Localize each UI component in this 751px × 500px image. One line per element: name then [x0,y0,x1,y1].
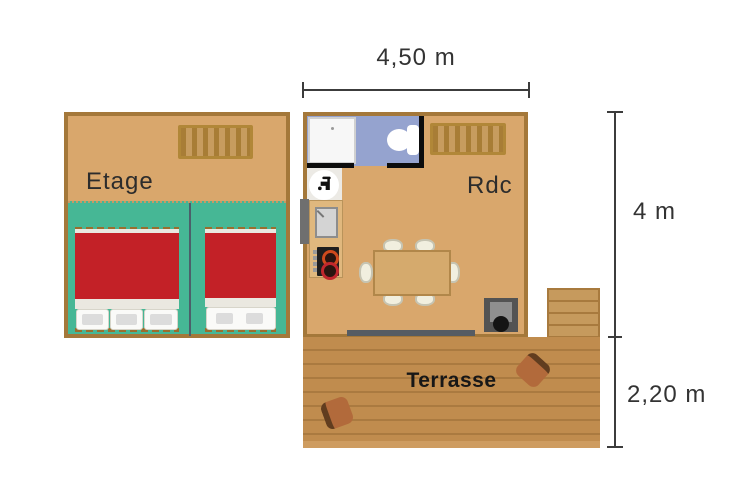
dining-table [373,250,451,296]
height-dimension-tick-middle [608,336,622,338]
etage-plan: Etage [64,112,290,338]
wood-stove-door [493,316,509,332]
height-lower-label: 2,20 m [627,381,706,409]
outdoor-steps [547,288,600,338]
height-dimension-tick-bottom [607,446,623,448]
burner [321,262,339,280]
rdc-label: Rdc [467,172,513,200]
width-dimension-label: 4,50 m [302,44,530,72]
bed-duvet-red [75,233,179,299]
pillow [246,313,263,324]
width-dimension-tick-left [302,82,304,98]
side-door [300,199,309,244]
terrasse-label: Terrasse [303,369,600,393]
etage-bedrooms [68,201,286,334]
height-dimension-tick-top [607,111,623,113]
stove-knob [313,262,317,266]
wood-stove-icon [484,298,518,332]
bathroom-wall-bottom-right [387,163,424,168]
bed-sheet-fold [205,298,276,307]
pillow [110,309,143,330]
pillow [216,313,233,324]
double-bed [205,227,276,334]
height-dimension-line [614,112,616,448]
pillow [144,309,178,330]
cooktop-icon [317,247,339,276]
water-tap-icon [309,170,339,200]
stove-knob [313,250,317,254]
deck-chair [319,395,355,431]
double-pillow-block [206,307,276,330]
triple-single-beds [75,227,179,334]
dining-chair [359,262,373,283]
deck-edge [303,441,600,448]
stove-knob [313,268,317,272]
width-dimension-line [302,89,530,91]
bed-sheet-fold [75,299,179,309]
terrasse-deck: Terrasse [303,337,600,448]
pillow [76,309,109,330]
height-upper-label: 4 m [633,198,676,226]
tap-glyph [314,175,334,195]
staircase-icon [178,125,253,159]
kitchen-sink-icon [315,207,338,238]
floor-plan-canvas: 4,50 m 4 m 2,20 m Etage [0,0,751,500]
bedroom-divider-wall [189,203,191,336]
toilet-bowl [387,129,411,151]
bathroom-wall-right [419,116,424,168]
rdc-plan: Rdc [303,112,528,338]
stove-knob [313,256,317,260]
bed-duvet-red [205,233,276,298]
sliding-door [347,330,475,336]
etage-label: Etage [86,168,154,196]
shower-icon [308,117,356,164]
staircase-icon [430,123,506,155]
width-dimension-tick-right [528,82,530,98]
